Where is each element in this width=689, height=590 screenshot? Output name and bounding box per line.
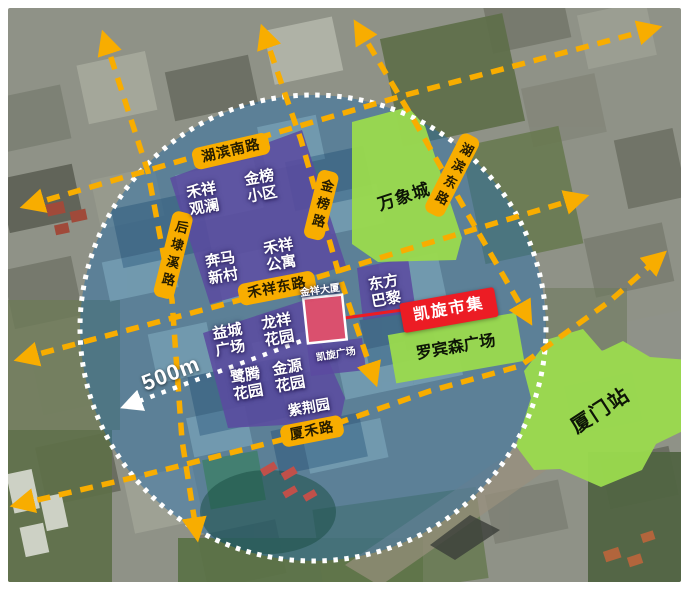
area-label-yicheng-guangchang: 益城广场 xyxy=(211,322,246,360)
area-label-hexiang-guanlan: 禾祥观澜 xyxy=(185,181,220,219)
area-label-dongfang-bali: 东方巴黎 xyxy=(367,273,402,311)
site-location-map: 湖滨南路 后埭溪路 金榜路 湖滨东路 禾祥东路 厦禾路 禾祥观澜 金榜小区 奔马… xyxy=(0,0,689,590)
area-label-hexiang-gongyu: 禾祥公寓 xyxy=(262,237,297,275)
area-label-luteng-huayuan: 鹭腾花园 xyxy=(229,366,264,404)
area-label-jinyuan-huayuan: 金源花园 xyxy=(271,358,306,396)
area-label-benma-xincun: 奔马新村 xyxy=(204,250,239,288)
area-label-longxiang-huayuan: 龙祥花园 xyxy=(260,312,295,350)
map-canvas xyxy=(0,0,689,590)
area-label-jinbang-xiaoqu: 金榜小区 xyxy=(243,168,278,206)
site-building-jinxiang-tower xyxy=(303,295,346,344)
